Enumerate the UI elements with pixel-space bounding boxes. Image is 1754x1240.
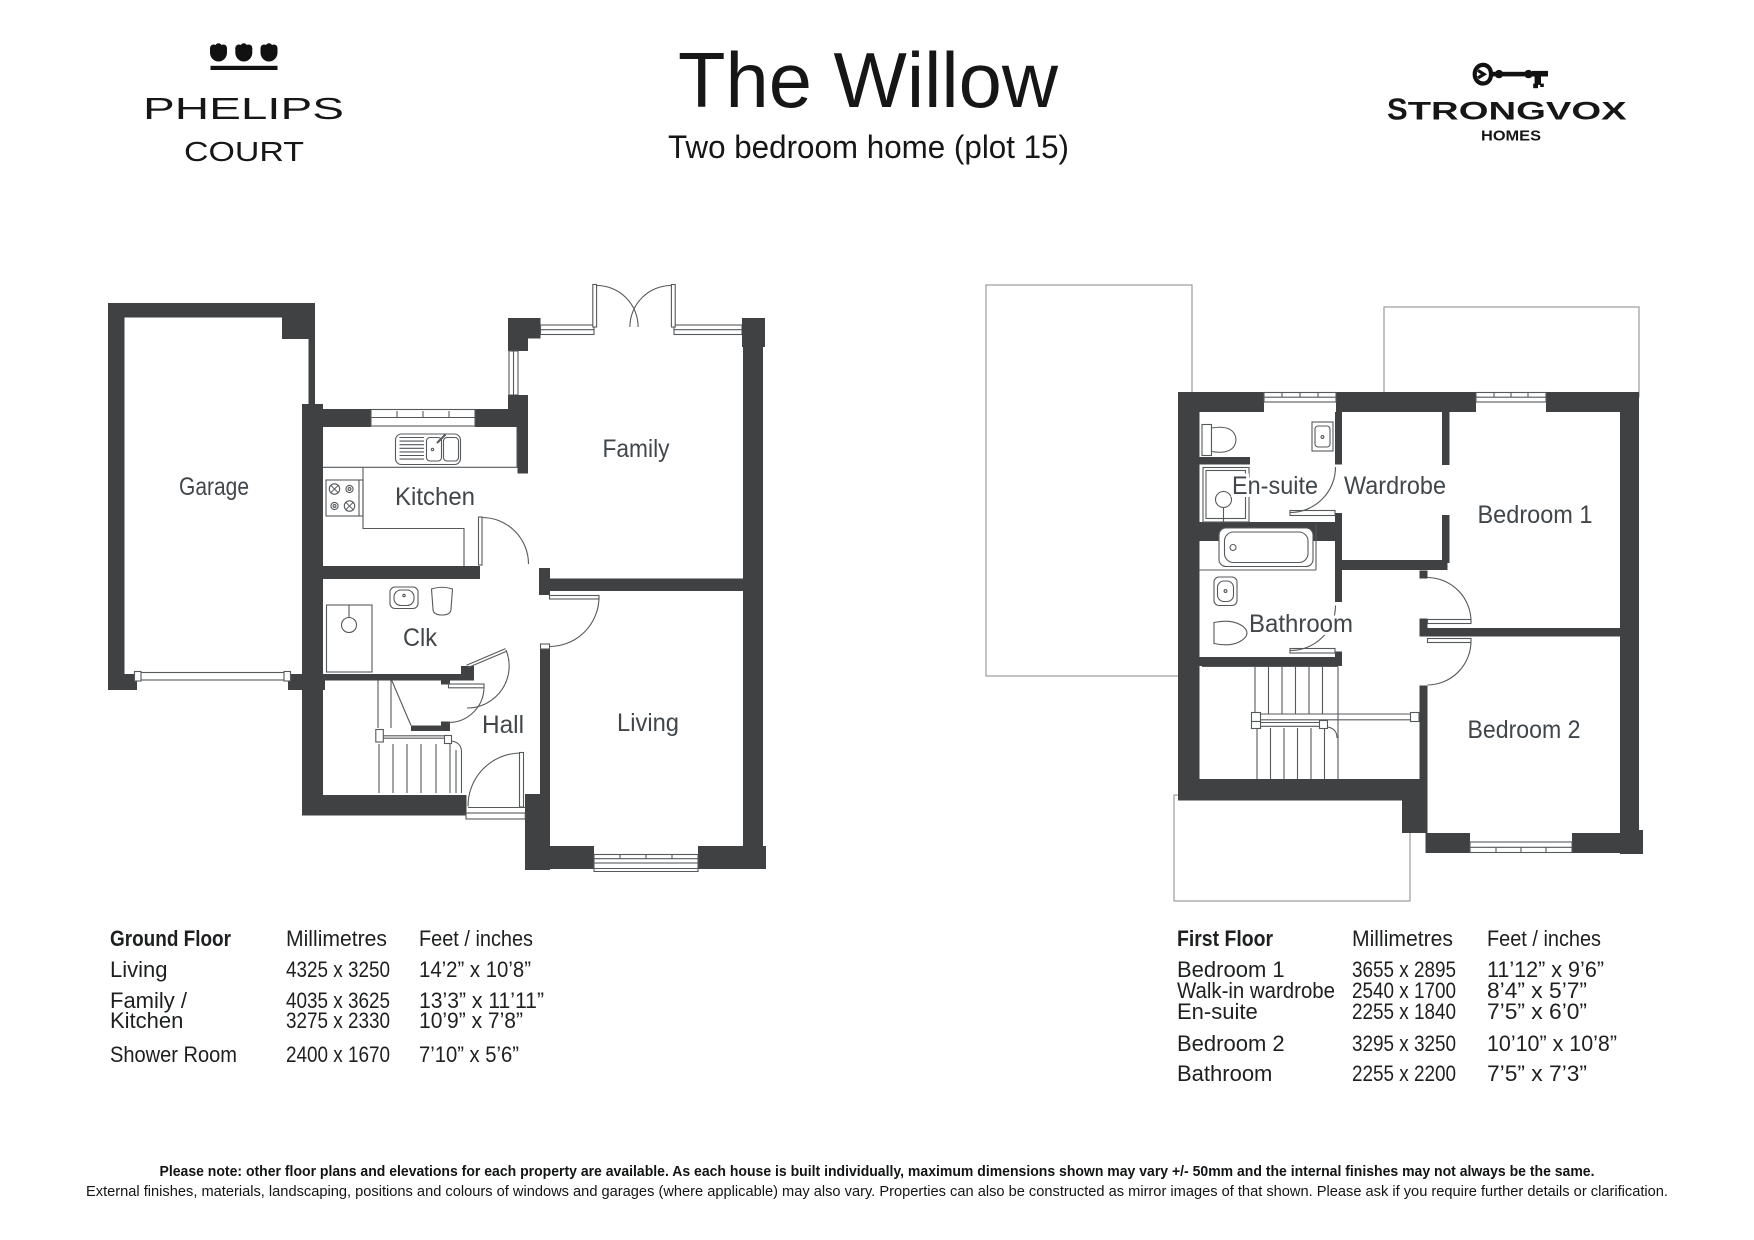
svg-text:Two bedroom home (plot 15): Two bedroom home (plot 15) (668, 129, 1069, 165)
svg-text:14’2” x 10’8”: 14’2” x 10’8” (419, 957, 531, 982)
svg-text:Bedroom 2: Bedroom 2 (1468, 716, 1581, 744)
svg-text:7’10” x 5’6”: 7’10” x 5’6” (419, 1042, 519, 1067)
svg-text:Ground Floor: Ground Floor (110, 926, 231, 951)
svg-text:Living: Living (617, 709, 679, 737)
svg-text:Clk: Clk (403, 624, 437, 652)
svg-text:Living: Living (110, 957, 167, 982)
svg-text:PHELIPS: PHELIPS (143, 91, 344, 126)
svg-text:First Floor: First Floor (1177, 926, 1273, 951)
svg-text:COURT: COURT (184, 136, 304, 167)
svg-text:10’9” x 7’8”: 10’9” x 7’8” (419, 1008, 523, 1033)
svg-text:2400 x 1670: 2400 x 1670 (286, 1042, 390, 1067)
svg-text:Kitchen: Kitchen (110, 1008, 183, 1033)
svg-text:En-suite: En-suite (1177, 999, 1258, 1024)
svg-text:Bedroom 2: Bedroom 2 (1177, 1031, 1285, 1056)
svg-text:10’10” x 10’8”: 10’10” x 10’8” (1487, 1031, 1617, 1056)
svg-text:2255 x 1840: 2255 x 1840 (1352, 999, 1456, 1024)
svg-text:4325 x 3250: 4325 x 3250 (286, 957, 390, 982)
svg-text:Family: Family (603, 435, 670, 463)
svg-text:Wardrobe: Wardrobe (1344, 472, 1446, 500)
svg-text:Bathroom: Bathroom (1249, 610, 1353, 638)
svg-text:Bedroom 1: Bedroom 1 (1478, 501, 1593, 529)
svg-text:Kitchen: Kitchen (395, 483, 475, 511)
svg-text:2255 x 2200: 2255 x 2200 (1352, 1061, 1456, 1086)
svg-text:7’5” x 7’3”: 7’5” x 7’3” (1487, 1061, 1587, 1086)
svg-text:Hall: Hall (482, 711, 524, 739)
svg-text:7’5” x 6’0”: 7’5” x 6’0” (1487, 999, 1587, 1024)
svg-text:The Willow: The Willow (678, 36, 1059, 124)
svg-text:3295 x 3250: 3295 x 3250 (1352, 1031, 1456, 1056)
svg-text:External finishes, materials,: External finishes, materials, landscapin… (86, 1184, 1668, 1200)
svg-text:Garage: Garage (179, 473, 249, 501)
svg-text:Please note: other floor plans: Please note: other floor plans and eleva… (160, 1164, 1595, 1180)
svg-text:HOMES: HOMES (1481, 128, 1541, 145)
svg-text:Millimetres: Millimetres (286, 926, 387, 951)
svg-text:Feet / inches: Feet / inches (419, 926, 533, 951)
svg-text:Feet / inches: Feet / inches (1487, 926, 1601, 951)
svg-text:Shower Room: Shower Room (110, 1042, 237, 1067)
svg-text:Millimetres: Millimetres (1352, 926, 1453, 951)
svg-text:Bathroom: Bathroom (1177, 1061, 1272, 1086)
svg-text:STRONGVOX: STRONGVOX (1387, 92, 1627, 127)
svg-text:En-suite: En-suite (1232, 472, 1318, 500)
svg-text:3275 x 2330: 3275 x 2330 (286, 1008, 390, 1033)
